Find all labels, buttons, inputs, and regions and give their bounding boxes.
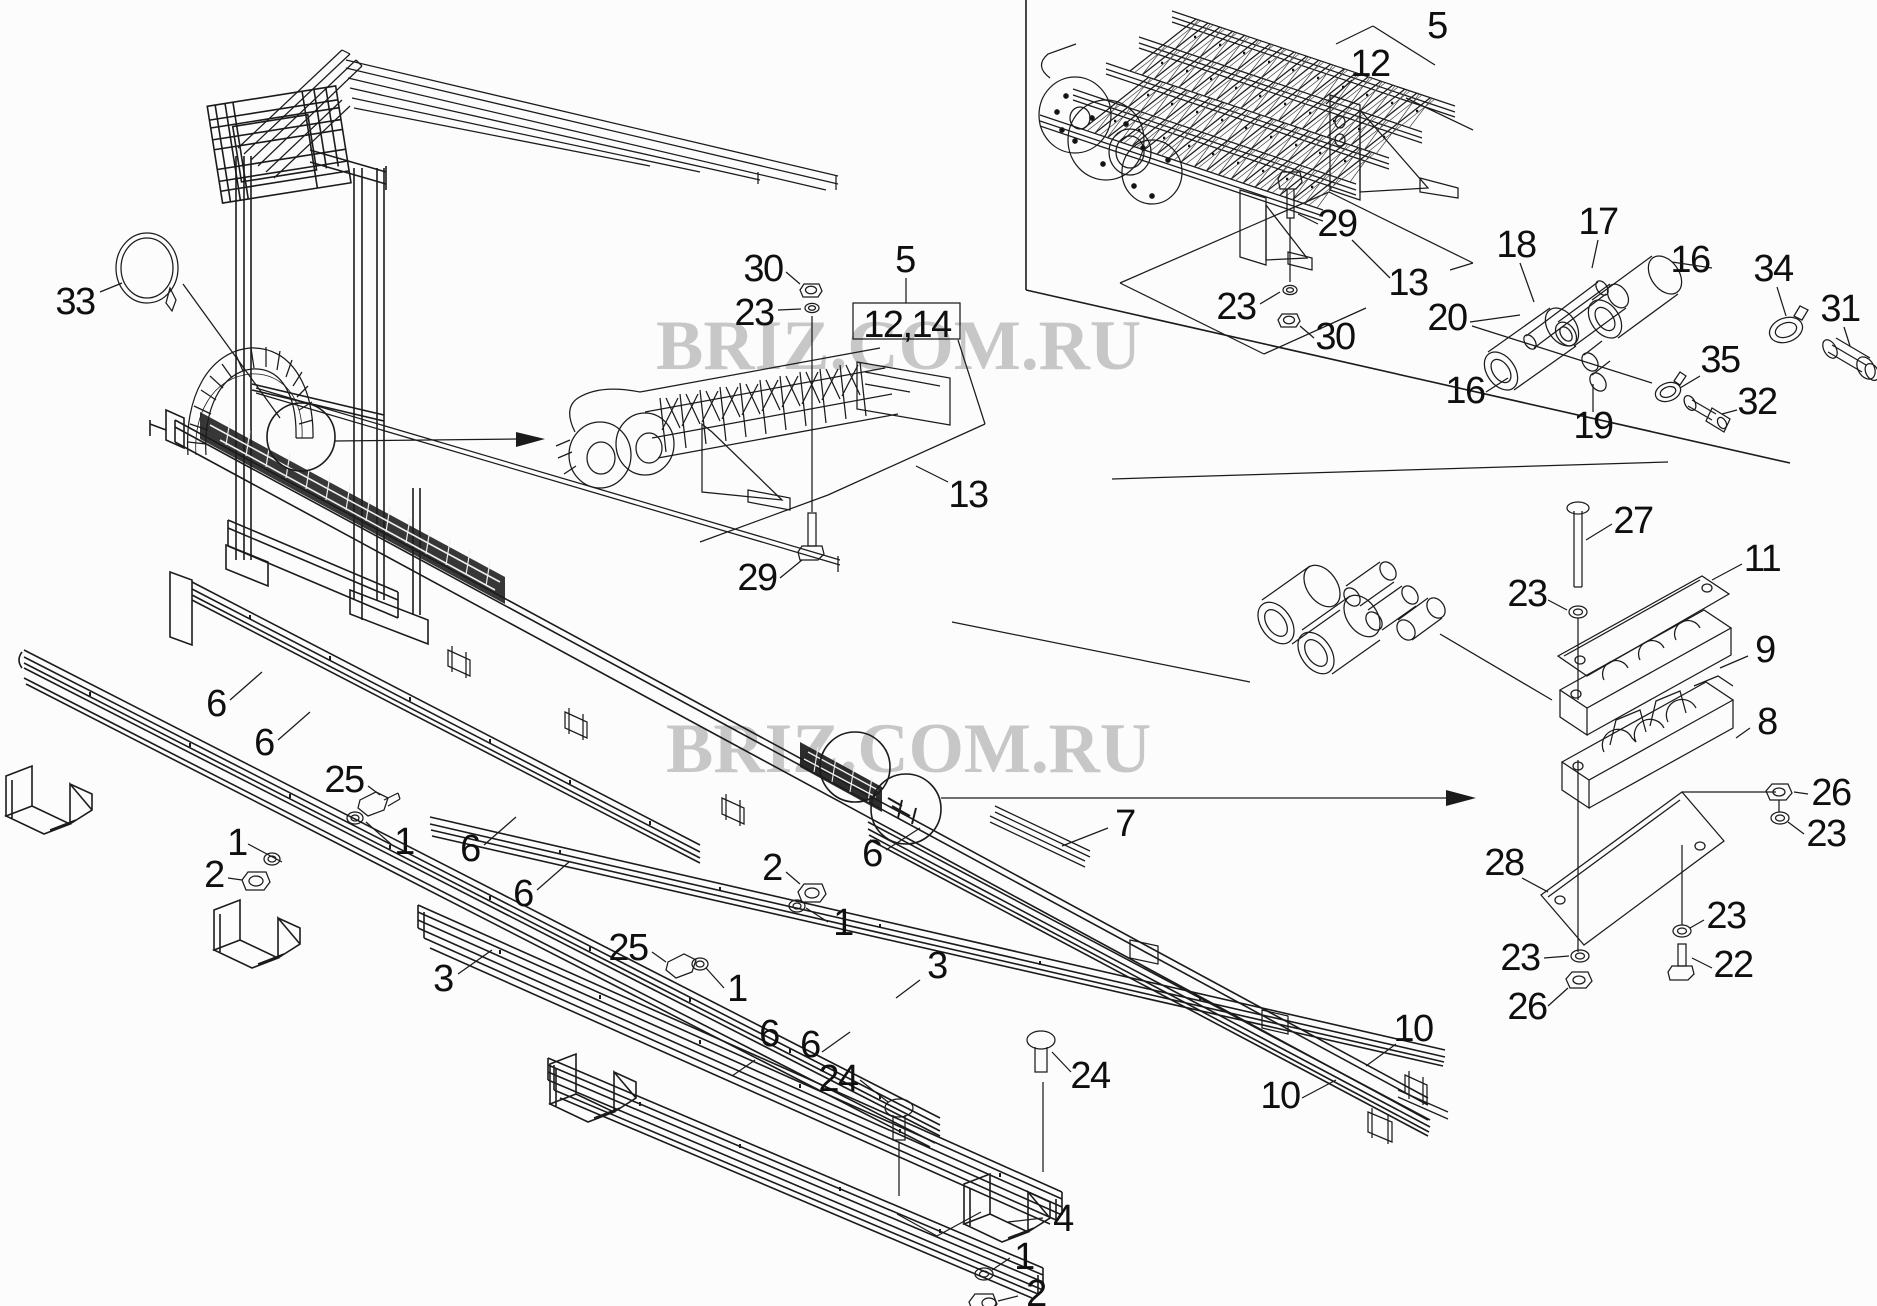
svg-text:3: 3	[433, 958, 453, 1000]
svg-text:10: 10	[1393, 1008, 1433, 1050]
svg-text:1: 1	[394, 821, 414, 863]
svg-text:23: 23	[1507, 573, 1547, 615]
svg-text:6: 6	[254, 722, 274, 764]
svg-text:31: 31	[1820, 288, 1860, 330]
svg-text:20: 20	[1427, 297, 1467, 339]
svg-text:22: 22	[1713, 944, 1753, 986]
svg-text:10: 10	[1260, 1075, 1300, 1117]
svg-text:2: 2	[204, 854, 224, 896]
svg-text:29: 29	[1317, 203, 1357, 245]
svg-text:16: 16	[1670, 239, 1710, 281]
svg-text:27: 27	[1613, 500, 1653, 542]
svg-text:6: 6	[513, 873, 533, 915]
svg-text:4: 4	[1053, 1198, 1074, 1240]
svg-text:23: 23	[1806, 813, 1846, 855]
svg-text:5: 5	[1427, 5, 1447, 47]
svg-text:8: 8	[1757, 701, 1777, 743]
svg-text:32: 32	[1737, 381, 1777, 423]
svg-text:18: 18	[1496, 224, 1536, 266]
svg-text:29: 29	[737, 557, 777, 599]
svg-text:30: 30	[1315, 316, 1355, 358]
svg-text:1: 1	[227, 822, 247, 864]
svg-text:1: 1	[1014, 1236, 1034, 1278]
svg-text:34: 34	[1753, 248, 1794, 290]
svg-text:23: 23	[1216, 286, 1256, 328]
svg-text:2: 2	[762, 847, 782, 889]
svg-text:35: 35	[1700, 339, 1740, 381]
svg-text:24: 24	[1070, 1055, 1111, 1097]
svg-text:5: 5	[895, 239, 915, 281]
svg-text:26: 26	[1507, 986, 1547, 1028]
svg-text:16: 16	[1445, 370, 1485, 412]
svg-text:28: 28	[1484, 842, 1524, 884]
svg-text:12,14: 12,14	[863, 304, 952, 346]
svg-text:9: 9	[1755, 629, 1775, 671]
svg-text:6: 6	[800, 1024, 820, 1066]
svg-text:6: 6	[759, 1013, 779, 1055]
svg-text:13: 13	[1388, 262, 1428, 304]
svg-text:17: 17	[1578, 201, 1618, 243]
svg-text:23: 23	[1500, 937, 1540, 979]
svg-text:25: 25	[608, 927, 648, 969]
svg-text:1: 1	[833, 902, 853, 944]
svg-text:13: 13	[948, 474, 988, 516]
svg-text:24: 24	[818, 1058, 859, 1100]
svg-text:6: 6	[206, 683, 226, 725]
svg-text:6: 6	[460, 828, 480, 870]
svg-text:7: 7	[1115, 803, 1135, 845]
svg-text:3: 3	[927, 945, 947, 987]
svg-text:25: 25	[324, 759, 364, 801]
svg-text:12: 12	[1350, 43, 1390, 85]
svg-text:11: 11	[1744, 538, 1781, 580]
svg-text:BRIZ.COM.RU: BRIZ.COM.RU	[666, 710, 1151, 788]
svg-text:33: 33	[55, 281, 95, 323]
svg-text:30: 30	[743, 248, 783, 290]
svg-text:1: 1	[727, 968, 747, 1010]
svg-text:23: 23	[734, 292, 774, 334]
svg-text:2: 2	[1026, 1273, 1046, 1306]
svg-text:26: 26	[1811, 772, 1851, 814]
svg-text:23: 23	[1706, 895, 1746, 937]
svg-text:6: 6	[862, 833, 882, 875]
